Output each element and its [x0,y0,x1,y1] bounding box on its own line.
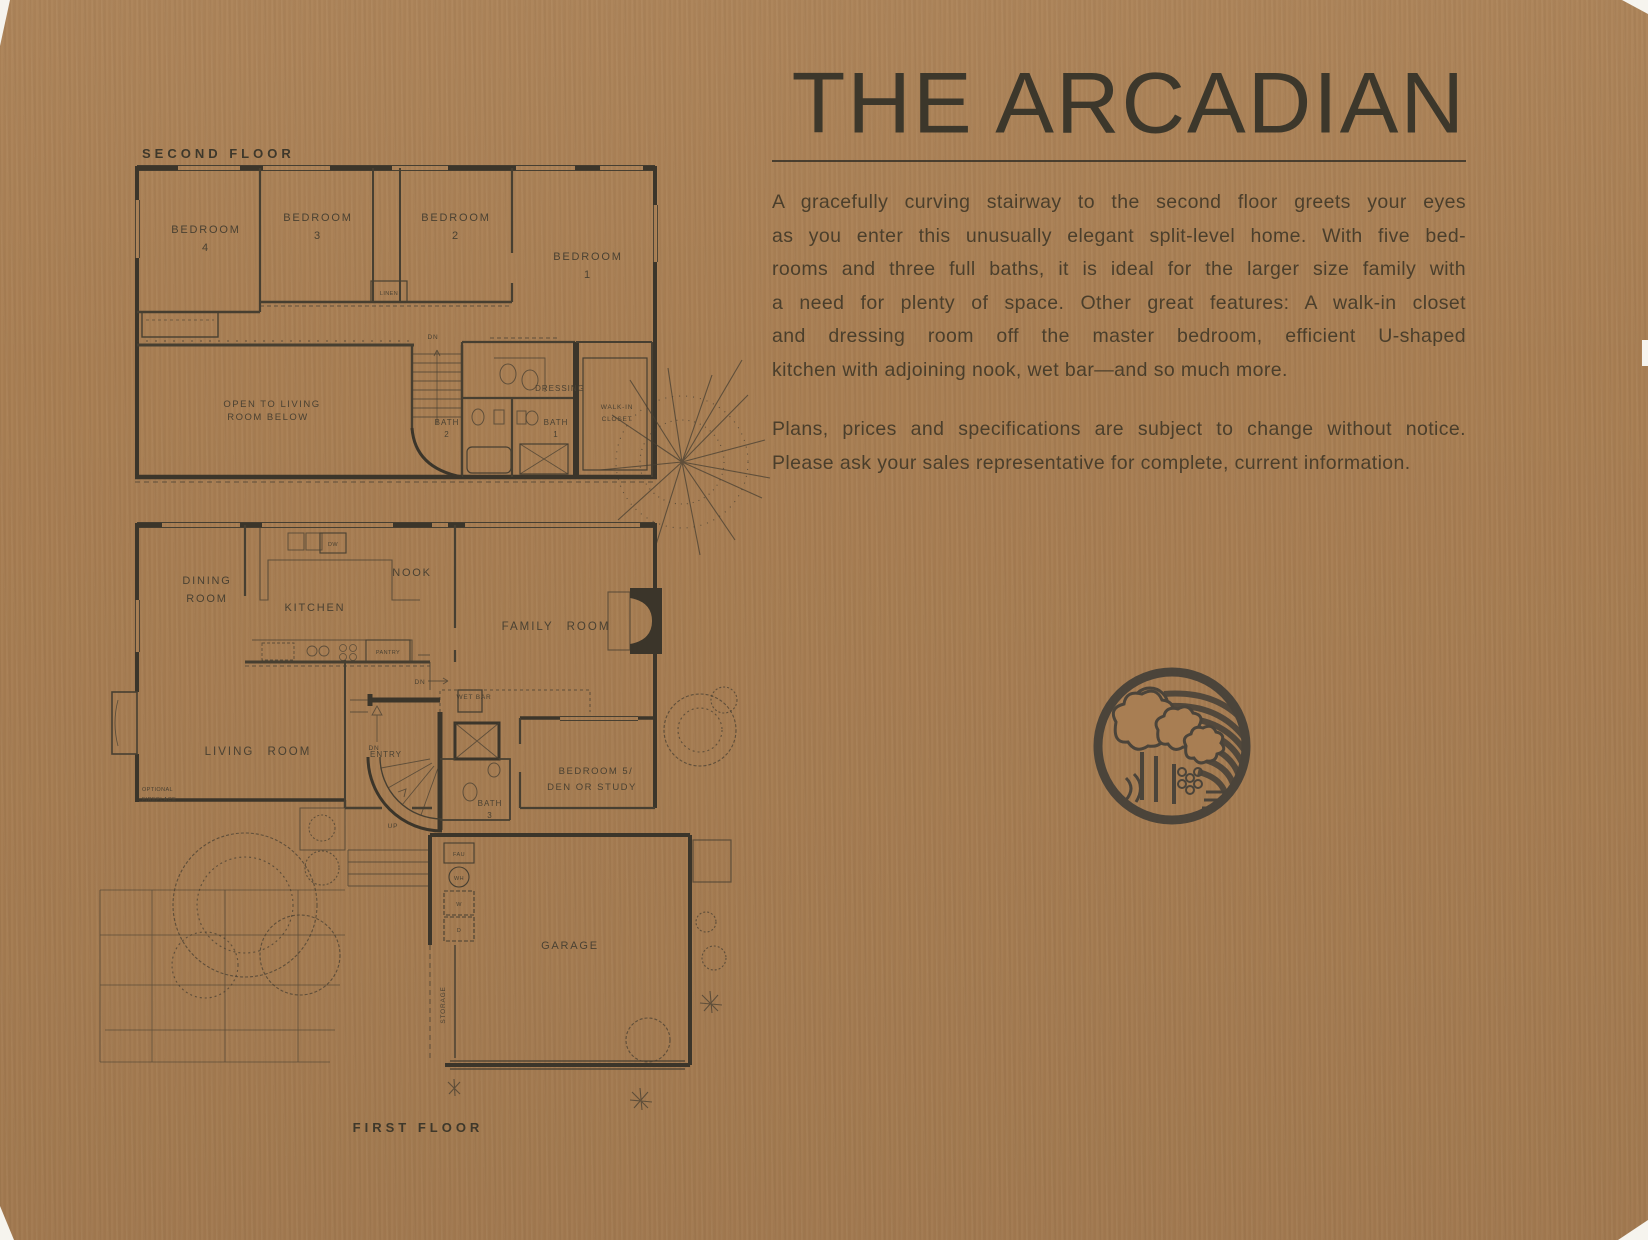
label-bath-1-num: 1 [553,430,558,439]
label-dn-nook: DN [415,679,426,686]
second-floor-plan: SECOND FLOOR [135,146,770,555]
room-label-family: FAMILY ROOM [502,621,611,633]
room-label-living: LIVING ROOM [205,746,312,758]
label-wet-bar: WET BAR [456,694,491,701]
room-label-bedroom-1-num: 1 [584,269,592,281]
label-bath-3: BATH [478,799,503,808]
room-label-bedroom-1: BEDROOM [553,251,622,263]
scan-corner [1622,0,1648,14]
label-optional-fireplace-2: FIREPLACE [142,797,176,803]
scan-edge-mark [1642,340,1648,366]
scan-corner [1618,1220,1648,1240]
label-optional-fireplace: OPTIONAL [142,787,173,793]
label-washer: W [456,902,462,908]
description-line: and dressing room off the master bedroom… [772,320,1466,354]
description-line: as you enter this unusually elegant spli… [772,220,1466,254]
farm-orchard-circle-logo [1086,660,1258,832]
room-label-dining: DINING [182,575,231,587]
room-label-bedroom-3-num: 3 [314,230,322,242]
room-label-bedroom-2: BEDROOM [421,212,490,224]
label-dn-stairs: DN [428,334,439,341]
room-label-bedroom-2-num: 2 [452,230,460,242]
room-label-dining-2: ROOM [186,593,227,605]
room-label-bedroom-4-num: 4 [202,242,210,254]
palm-tree-decoration [600,360,770,555]
disclaimer-line: Plans, prices and specifications are sub… [772,413,1466,447]
first-floor-room-labels: DINING ROOM KITCHEN NOOK PANTRY DW FAMIL… [142,542,637,1024]
label-bath-3-num: 3 [487,811,492,820]
label-walk-in-closet: WALK-IN [601,404,633,411]
label-dishwasher: DW [328,542,338,548]
description-line: A gracefully curving stairway to the sec… [772,186,1466,220]
room-label-nook: NOOK [392,567,432,579]
label-pantry: PANTRY [376,650,400,656]
room-label-bedroom5: BEDROOM 5/ [559,766,634,777]
copy-block: THE ARCADIAN A gracefully curving stairw… [772,60,1466,480]
room-label-garage: GARAGE [541,940,599,952]
label-dn-entry: DN [369,745,380,752]
description-line: a need for plenty of space. Other great … [772,287,1466,321]
floor-plans: SECOND FLOOR [0,0,800,1240]
second-floor-walls [135,166,658,483]
first-floor-heading: FIRST FLOOR [353,1120,484,1135]
first-floor-plan: DINING ROOM KITCHEN NOOK PANTRY DW FAMIL… [100,523,737,1136]
disclaimer-paragraph: Plans, prices and specifications are sub… [772,413,1466,480]
description-line: rooms and three full baths, it is ideal … [772,253,1466,287]
room-label-bedroom-4: BEDROOM [171,224,240,236]
room-label-bedroom5-2: DEN OR STUDY [547,782,637,793]
label-bath-2: BATH [435,418,460,427]
label-fau: FAU [453,852,465,858]
label-water-heater: WH [454,876,464,882]
label-open-to-below-2: ROOM BELOW [227,412,309,423]
label-walk-in-closet-2: CLOSET [602,416,633,423]
disclaimer-line: Please ask your sales representative for… [772,447,1466,481]
label-bath-2-num: 2 [444,430,449,439]
label-linen: LINEN [380,291,398,297]
label-dressing: DRESSING [535,384,585,393]
description-paragraph: A gracefully curving stairway to the sec… [772,186,1466,387]
label-open-to-below: OPEN TO LIVING [223,399,320,410]
label-up: UP [388,823,399,830]
label-storage: STORAGE [440,986,447,1023]
room-label-bedroom-3: BEDROOM [283,212,352,224]
second-floor-room-labels: BEDROOM 4 BEDROOM 3 BEDROOM 2 BEDROOM 1 … [171,212,633,439]
label-dryer: D [457,928,461,934]
title-rule [772,160,1466,162]
second-floor-heading: SECOND FLOOR [142,146,295,161]
brochure-page: SECOND FLOOR [0,0,1648,1240]
room-label-kitchen: KITCHEN [285,602,346,614]
page-title: THE ARCADIAN [772,60,1466,146]
description-line: kitchen with adjoining nook, wet bar—and… [772,354,1466,388]
label-bath-1: BATH [544,418,569,427]
